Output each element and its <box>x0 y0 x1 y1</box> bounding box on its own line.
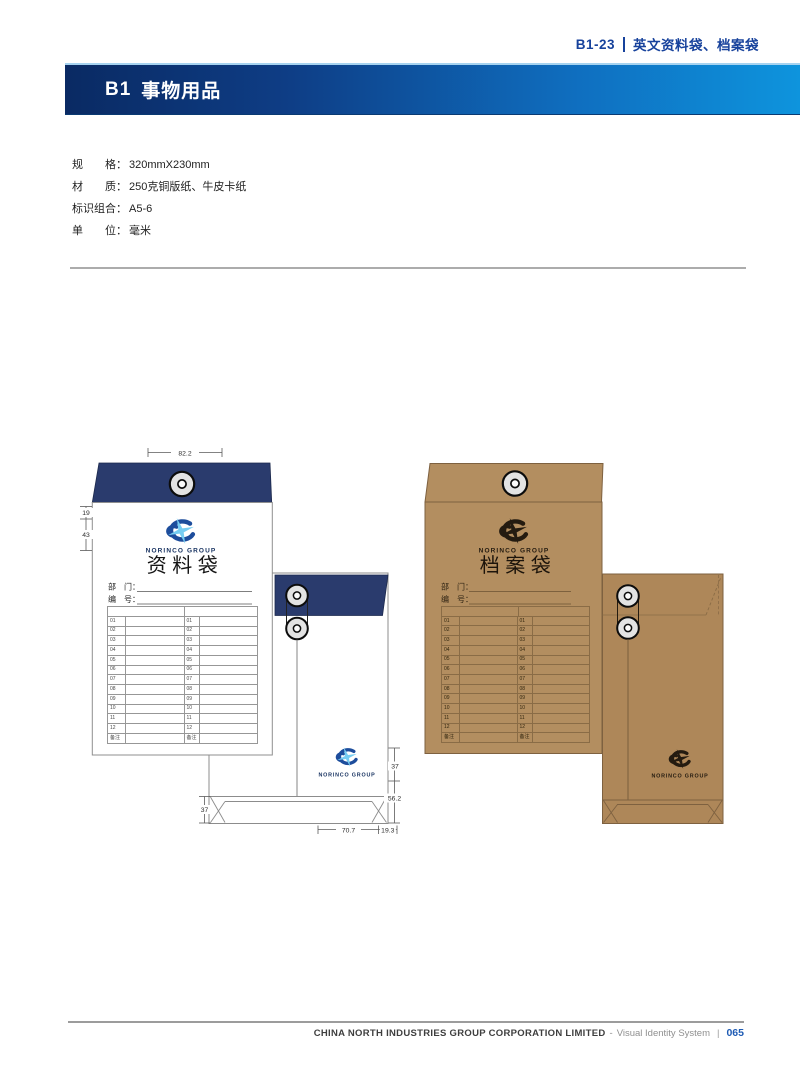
envelope-title: 档案袋 <box>480 553 557 577</box>
index-table-row: 0404 <box>108 645 257 655</box>
dim-logo-offset: 43 <box>82 532 90 539</box>
clasp-grommet <box>617 585 639 607</box>
index-table-row: 0808 <box>108 684 257 694</box>
index-table-row: 0404 <box>442 645 589 655</box>
spec-row: 单 位：毫米 <box>72 220 246 242</box>
spec-value: 250克铜版纸、牛皮卡纸 <box>129 181 246 193</box>
page-ref-code: B1-23 <box>576 37 615 52</box>
index-table-row: 0707 <box>442 674 589 684</box>
index-table-row: 1111 <box>108 713 257 723</box>
footer-dash: - <box>610 1028 613 1039</box>
clasp-grommet <box>617 617 639 639</box>
section-code: B1 <box>105 79 131 101</box>
spec-value: 320mmX230mm <box>129 159 210 171</box>
index-table-row: 0707 <box>108 674 257 684</box>
index-table-row: 0505 <box>108 655 257 665</box>
index-table-header-row <box>442 607 589 616</box>
brand-wordmark: NORINCO GROUP <box>318 773 375 779</box>
index-table-row: 0606 <box>108 665 257 675</box>
index-table: 0101020203030404050506060707080809091010… <box>441 606 590 743</box>
spec-label: 标识组合： <box>72 203 127 215</box>
index-table: 0101020203030404050506060707080809091010… <box>107 606 258 744</box>
footer-page-number: 065 <box>726 1027 744 1039</box>
dim-bottom-width: 70.7 <box>342 828 355 835</box>
index-table-row: 0303 <box>442 635 589 645</box>
footer-bar: | <box>717 1028 719 1039</box>
index-table-row: 0808 <box>442 684 589 694</box>
index-table-row: 1010 <box>108 704 257 714</box>
dim-back-bottom-zone: 56.2 <box>388 796 401 803</box>
index-table-row: 0606 <box>442 664 589 674</box>
index-table-row: 0909 <box>442 693 589 703</box>
spec-row: 规 格：320mmX230mm <box>72 154 246 176</box>
footer: CHINA NORTH INDUSTRIES GROUP CORPORATION… <box>68 1027 744 1039</box>
no-label: 编 号： <box>108 594 140 604</box>
index-table-row: 1212 <box>108 723 257 733</box>
index-table-row: 0505 <box>442 655 589 665</box>
index-table-row: 备注备注 <box>108 733 257 743</box>
ref-divider <box>623 37 625 52</box>
index-table-row: 备注备注 <box>442 732 589 742</box>
footer-system-name: Visual Identity System <box>617 1028 710 1039</box>
spec-value: A5-6 <box>129 203 152 215</box>
clasp-grommet <box>503 471 527 495</box>
dept-label: 部 门： <box>108 582 140 592</box>
dim-gusset-height: 37 <box>201 807 209 814</box>
index-table-row: 0202 <box>442 625 589 635</box>
footer-divider <box>68 1021 744 1023</box>
index-table-row: 1010 <box>442 703 589 713</box>
index-table-row: 1111 <box>442 713 589 723</box>
vi-manual-page: B1-23 英文资料袋、档案袋 B1 事物用品 规 格：320mmX230mm … <box>0 0 800 1085</box>
page-ref-title: 英文资料袋、档案袋 <box>633 34 759 54</box>
dim-flap-depth: 19 <box>82 510 90 517</box>
spec-label: 规 格： <box>72 159 127 171</box>
specs-block: 规 格：320mmX230mm 材 质：250克铜版纸、牛皮卡纸 标识组合：A5… <box>72 154 246 242</box>
index-table-row: 0202 <box>108 626 257 636</box>
clasp-grommet <box>170 472 194 496</box>
spec-label: 单 位： <box>72 225 127 237</box>
page-ref: B1-23 英文资料袋、档案袋 <box>576 34 759 54</box>
dept-label: 部 门： <box>441 582 473 592</box>
archive-bag-back-view: NORINCO GROUP <box>603 574 724 824</box>
index-table-row: 0101 <box>108 616 257 626</box>
envelope-body <box>603 574 724 824</box>
spec-value: 毫米 <box>129 225 151 237</box>
index-table-row: 0101 <box>442 616 589 626</box>
section-title: 事物用品 <box>141 76 221 103</box>
footer-company: CHINA NORTH INDUSTRIES GROUP CORPORATION… <box>314 1028 606 1039</box>
brand-wordmark: NORINCO GROUP <box>651 774 708 780</box>
spec-row: 标识组合：A5-6 <box>72 198 246 220</box>
index-table-header-row <box>108 607 257 616</box>
index-table-row: 0909 <box>108 694 257 704</box>
clasp-grommet <box>286 585 308 607</box>
envelope-title: 资料袋 <box>147 553 224 577</box>
dim-flap-width: 82.2 <box>178 451 191 458</box>
section-title-bar: B1 事物用品 <box>65 63 800 115</box>
spec-label: 材 质： <box>72 181 127 193</box>
spec-row: 材 质：250克铜版纸、牛皮卡纸 <box>72 176 246 198</box>
index-table-row: 1212 <box>442 723 589 733</box>
index-table-row: 0303 <box>108 635 257 645</box>
section-divider <box>70 267 746 269</box>
dim-back-logo-offset: 37 <box>391 764 399 771</box>
clasp-grommet <box>286 618 308 640</box>
dim-bottom-flap: 19.3 <box>381 828 394 835</box>
no-label: 编 号： <box>441 594 473 604</box>
